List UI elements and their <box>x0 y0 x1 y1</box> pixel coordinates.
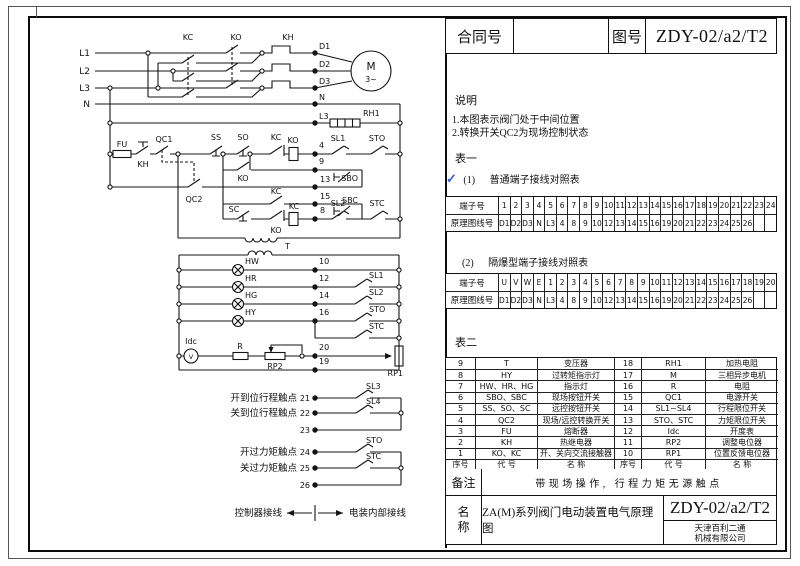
component-table-cell: T <box>475 358 537 369</box>
lbl-t26: 26 <box>300 481 310 490</box>
lbl-rp2: RP2 <box>267 362 282 371</box>
component-table-cell: 14 <box>614 403 641 414</box>
component-table-cell: RP1 <box>641 448 705 459</box>
terminal-table-cell: 12 <box>625 197 637 214</box>
terminal-table-cell: D1 <box>498 291 510 308</box>
terminal-table-cell <box>753 291 765 308</box>
component-boxes <box>113 119 403 366</box>
terminal-table-cell: L3 <box>544 291 556 308</box>
terminal-table-cell: U <box>498 274 510 291</box>
terminal-table-cell: 20 <box>718 197 730 214</box>
terminal-table-cell: 18 <box>741 274 753 291</box>
terminal-table-cell <box>764 214 776 231</box>
lbl-stc-lamp: STC <box>369 322 384 331</box>
terminal-table-cell: 2 <box>556 274 568 291</box>
lbl-legend-left: 控制器接线 <box>234 507 282 519</box>
table1-sub1-line: ✓ (1) 普通端子接线对照表 <box>446 171 580 187</box>
sub2-title: 隔爆型端子接线对照表 <box>488 258 588 269</box>
lbl-t19: 19 <box>319 357 329 366</box>
lbl-stc-main: STC <box>369 199 384 208</box>
sub1-index: (1) <box>463 175 475 186</box>
component-table-cell: 7 <box>446 380 475 391</box>
terminal-table-cell: 21 <box>683 214 695 231</box>
component-table-cell: 电阻 <box>705 380 778 391</box>
terminal-table-cell: 23 <box>706 214 718 231</box>
terminal-table-cell: 10 <box>649 274 661 291</box>
contact-symbols <box>136 45 388 468</box>
component-table-cell: 现场按钮开关 <box>537 392 614 403</box>
terminal-table-cell: L3 <box>544 214 556 231</box>
terminal-table-row-label: 端子号 <box>446 197 498 214</box>
sub2-index: (2) <box>462 258 474 269</box>
lbl-t4: 4 <box>319 141 324 150</box>
terminal-table-cell: 4 <box>579 274 591 291</box>
lbl-t15: 15 <box>320 192 330 201</box>
lbl-qc2: QC2 <box>186 195 203 204</box>
terminal-table-cell: N <box>533 291 545 308</box>
component-table-cell: 过转矩指示灯 <box>537 369 614 380</box>
component-table-cell: 16 <box>614 380 641 391</box>
terminal-table-cell: 19 <box>660 214 672 231</box>
terminal-table-cell: 6 <box>602 274 614 291</box>
contract-no-value <box>514 19 609 53</box>
terminal-table-cell: 14 <box>625 214 637 231</box>
terminal-table-cell: E <box>533 274 545 291</box>
table1-sub2-line: (2) 隔爆型端子接线对照表 <box>462 254 588 269</box>
terminal-table-cell <box>764 291 776 308</box>
table1-caption: 表一 <box>455 150 477 166</box>
lbl-t24: 24 <box>300 448 310 457</box>
component-table-cell: 远控按钮开关 <box>537 403 614 414</box>
terminal-table-cell: W <box>521 274 533 291</box>
terminal-table-cell: 5 <box>591 274 603 291</box>
lbl-kc-aux: KC <box>271 187 282 196</box>
component-table-cell: 2 <box>446 436 475 447</box>
lbl-l3: L3 <box>79 84 90 94</box>
terminal-table-cell: 16 <box>649 291 661 308</box>
lbl-fu: FU <box>117 140 128 149</box>
component-table-cell: SBO、SBC <box>475 392 537 403</box>
lbl-ko-nc: KO <box>270 226 281 235</box>
component-table-cell: 加热电阻 <box>705 358 778 369</box>
terminal-table-cell <box>753 214 765 231</box>
lbl-hr: HR <box>245 274 257 283</box>
lbl-sbo: SBO <box>341 174 358 183</box>
lbl-sl3: SL3 <box>366 382 381 391</box>
lbl-sl1-main: SL1 <box>331 134 346 143</box>
terminal-table-cell: 16 <box>672 197 684 214</box>
component-table-cell: 力矩限位开关 <box>705 414 778 425</box>
component-table-cell: HY <box>475 369 537 380</box>
terminal-table-cell: 7 <box>614 274 626 291</box>
lbl-t23: 23 <box>300 426 310 435</box>
component-table-cell: Idc <box>641 425 705 436</box>
lbl-n-term: N <box>319 93 325 102</box>
lbl-sl2-main: SL2 <box>331 199 346 208</box>
lbl-t14: 14 <box>319 291 329 300</box>
lbl-hg: HG <box>245 291 257 300</box>
notes-block: 说明 1.本图表示阀门处于中间位置 2.转换开关QC2为现场控制状态 <box>455 92 765 140</box>
component-table-cell: SS、SO、SC <box>475 403 537 414</box>
terminal-table-cell: D2 <box>510 291 522 308</box>
note-item: 2.转换开关QC2为现场控制状态 <box>452 127 765 140</box>
terminal-table-cell: 8 <box>579 197 591 214</box>
terminal-table-cell: 9 <box>637 274 649 291</box>
lamps <box>233 265 244 327</box>
component-table-cell: 11 <box>614 436 641 447</box>
lbl-meter-v: V <box>189 353 194 361</box>
terminal-table-row-label: 原理图线号 <box>446 291 498 308</box>
terminal-table-cell: 22 <box>741 197 753 214</box>
terminal-table-cell: 4 <box>556 291 568 308</box>
terminal-table-cell: 21 <box>730 197 742 214</box>
company-line2: 机械有限公司 <box>694 533 745 543</box>
lbl-rp1: RP1 <box>388 369 403 378</box>
terminal-table-cell: 24 <box>764 197 776 214</box>
kh-heater-symbols <box>268 46 294 88</box>
lbl-open-torque: 开过力矩触点 <box>240 446 298 458</box>
terminal-table-cell: 23 <box>706 291 718 308</box>
terminal-table-cell: 5 <box>544 197 556 214</box>
check-icon: ✓ <box>446 171 457 186</box>
arrowheads <box>269 347 393 516</box>
terminal-table-cell: 13 <box>637 197 649 214</box>
terminal-table-cell: 9 <box>579 291 591 308</box>
terminal-table-cell: V <box>510 274 522 291</box>
terminal-table-cell: 11 <box>660 274 672 291</box>
component-table-cell: QC2 <box>475 414 537 425</box>
terminal-table-cell: 20 <box>764 274 776 291</box>
lbl-motor: M <box>366 61 375 73</box>
component-table-cell: 9 <box>446 358 475 369</box>
lbl-close-travel: 关到位行程触点 <box>230 407 297 419</box>
component-table-cell: 热继电器 <box>537 436 614 447</box>
lbl-so: SO <box>237 133 248 142</box>
terminal-table-cell: D3 <box>521 291 533 308</box>
terminal-table-cell: 4 <box>556 214 568 231</box>
lbl-t8: 8 <box>320 206 325 215</box>
terminal-table-cell: 10 <box>591 214 603 231</box>
terminal-table-cell: 26 <box>741 214 753 231</box>
component-table-cell: 位置反馈电位器 <box>705 448 778 459</box>
lbl-t16: 16 <box>319 308 329 317</box>
terminal-table-cell: 7 <box>567 197 579 214</box>
lbl-ko-aux: KO <box>237 174 248 183</box>
component-table-cell: QC1 <box>641 392 705 403</box>
component-table-cell: STO、STC <box>641 414 705 425</box>
circuit-schematic: L1 L2 L3 N KC KO KH D1 D2 D3 N L3 RH1 M … <box>28 16 445 548</box>
component-table-cell: 开度表 <box>705 425 778 436</box>
component-table-cell: 6 <box>446 392 475 403</box>
drawing-no-label: 图号 <box>609 19 646 53</box>
terminal-table-cell: 15 <box>637 214 649 231</box>
lbl-close-torque: 关过力矩触点 <box>240 462 298 474</box>
lbl-sl2-lamp: SL2 <box>369 288 384 297</box>
remark-label: 备注 <box>446 469 482 495</box>
lbl-t20: 20 <box>319 343 329 352</box>
transformer-coils <box>245 238 277 255</box>
explosion-proof-terminal-table: 端子号UVWE1234567891011121314151617181920原理… <box>445 273 777 309</box>
terminal-table-cell: 12 <box>602 214 614 231</box>
name-block: 名 称 ZA(M)系列阀门电动装置电气原理图 ZDY-02/a2/T2 天津百利… <box>445 496 777 545</box>
terminal-table-cell: 12 <box>602 291 614 308</box>
terminal-table-cell: 15 <box>637 291 649 308</box>
lbl-kc-nc: KC <box>271 133 282 142</box>
lbl-kc-top: KC <box>183 33 194 42</box>
lbl-t12: 12 <box>319 274 329 283</box>
terminal-table-cell: 1 <box>498 197 510 214</box>
component-table-cell: 熔断器 <box>537 425 614 436</box>
component-table-cell: 10 <box>614 448 641 459</box>
component-table-cell: 现场/远控转换开关 <box>537 414 614 425</box>
component-table-cell: 开、关向交流接触器 <box>537 448 614 459</box>
terminal-table-cell: 26 <box>741 291 753 308</box>
terminal-table-cell: 21 <box>683 291 695 308</box>
terminal-table-cell: 8 <box>625 274 637 291</box>
terminal-table-cell: 19 <box>706 197 718 214</box>
component-table: 9T变压器18RH1加热电阻8HY过转矩指示灯17M三相异步电机7HW、HR、H… <box>445 357 777 471</box>
component-table-cell: 变压器 <box>537 358 614 369</box>
terminal-table-cell: 24 <box>718 214 730 231</box>
terminal-table-cell: 12 <box>672 274 684 291</box>
component-table-cell: 1 <box>446 448 475 459</box>
terminal-table-cell: 16 <box>718 274 730 291</box>
lbl-kh-top: KH <box>282 33 293 42</box>
lbl-ko-top: KO <box>230 33 241 42</box>
terminal-table-cell: 25 <box>730 291 742 308</box>
lbl-open-travel: 开到位行程触点 <box>230 392 297 404</box>
component-table-cell: 指示灯 <box>537 380 614 391</box>
lbl-t25: 25 <box>300 464 310 473</box>
terminal-table-cell: 22 <box>695 214 707 231</box>
lbl-idc: Idc <box>185 337 197 346</box>
terminal-table-cell: 20 <box>672 291 684 308</box>
terminal-table-cell: 10 <box>591 291 603 308</box>
lbl-kh-contact: KH <box>137 160 148 169</box>
lbl-ko-coil: KO <box>287 136 298 145</box>
terminal-table-cell: 8 <box>567 291 579 308</box>
lbl-sto-lamp: STO <box>369 305 385 314</box>
lbl-t9: 9 <box>319 157 324 166</box>
remark-block: 备注 带现场操作, 行程力矩无源触点 <box>445 469 777 496</box>
terminal-table-cell: 23 <box>753 197 765 214</box>
terminal-table-cell: 13 <box>614 214 626 231</box>
lbl-motor-phase: 3~ <box>365 75 377 84</box>
name-label-char2: 称 <box>457 520 469 535</box>
component-table-cell: M <box>641 369 705 380</box>
terminal-table-cell: 10 <box>602 197 614 214</box>
terminal-table-cell: 4 <box>533 197 545 214</box>
component-table-cell: 电源开关 <box>705 392 778 403</box>
terminal-table-cell: 3 <box>521 197 533 214</box>
terminal-table-row-label: 端子号 <box>446 274 498 291</box>
drawing-no-bottom: ZDY-02/a2/T2 <box>664 496 776 521</box>
lbl-l2: L2 <box>79 67 90 77</box>
component-table-cell: 12 <box>614 425 641 436</box>
terminal-table-cell: 24 <box>718 291 730 308</box>
lbl-hw: HW <box>245 257 259 266</box>
component-table-cell: KH <box>475 436 537 447</box>
component-table-cell: HW、HR、HG <box>475 380 537 391</box>
terminal-table-cell: 19 <box>753 274 765 291</box>
terminal-table-row-label: 原理图线号 <box>446 214 498 231</box>
mechanical-links <box>162 47 232 181</box>
lbl-qc1: QC1 <box>156 135 173 144</box>
component-table-cell: 5 <box>446 403 475 414</box>
name-label-char1: 名 <box>457 505 469 520</box>
terminal-table-cell: 13 <box>614 291 626 308</box>
remark-text: 带现场操作, 行程力矩无源触点 <box>482 469 776 495</box>
terminal-table-cell: 18 <box>695 197 707 214</box>
component-table-cell: RH1 <box>641 358 705 369</box>
terminal-table-cell: 14 <box>625 291 637 308</box>
lbl-transformer: T <box>284 242 290 251</box>
lbl-t22: 22 <box>300 409 310 418</box>
lbl-sto-out: STO <box>366 436 382 445</box>
lbl-t21: 21 <box>300 394 310 403</box>
drawing-title: ZA(M)系列阀门电动装置电气原理图 <box>482 496 664 544</box>
lbl-kc-coil: KC <box>289 202 300 211</box>
terminal-table-cell: 15 <box>660 197 672 214</box>
terminal-table-cell: 11 <box>614 197 626 214</box>
terminal-table-cell: 17 <box>683 197 695 214</box>
lbl-ss: SS <box>211 133 221 142</box>
name-label: 名 称 <box>446 496 482 544</box>
component-table-cell: 13 <box>614 414 641 425</box>
terminal-table-cell: 25 <box>730 214 742 231</box>
component-table-cell: 调整电位器 <box>705 436 778 447</box>
lbl-sl1-lamp: SL1 <box>369 271 384 280</box>
lbl-r: R <box>237 342 243 351</box>
lbl-rh1: RH1 <box>363 109 380 118</box>
lbl-sl4: SL4 <box>366 397 381 406</box>
component-table-cell: 4 <box>446 414 475 425</box>
component-table-cell: 8 <box>446 369 475 380</box>
lbl-l1: L1 <box>79 49 90 59</box>
terminal-table-cell: D2 <box>510 214 522 231</box>
drawing-sheet: L1 L2 L3 N KC KO KH D1 D2 D3 N L3 RH1 M … <box>0 0 800 566</box>
lbl-d2: D2 <box>319 60 330 69</box>
terminal-table-cell: 2 <box>510 197 522 214</box>
component-table-cell: KO、KC <box>475 448 537 459</box>
terminal-table-cell: 17 <box>730 274 742 291</box>
lbl-sc: SC <box>229 205 240 214</box>
terminal-table-cell: 19 <box>660 291 672 308</box>
terminal-table-cell: N <box>533 214 545 231</box>
lbl-t10: 10 <box>319 257 329 266</box>
lbl-legend-right: 电装内部接线 <box>349 507 407 519</box>
lbl-sto-main: STO <box>369 134 385 143</box>
table2-caption: 表二 <box>455 334 477 350</box>
note-item: 1.本图表示阀门处于中间位置 <box>452 114 765 127</box>
lbl-t13: 13 <box>320 175 330 184</box>
terminal-table-cell: 3 <box>567 274 579 291</box>
terminal-table-cell: 13 <box>683 274 695 291</box>
terminal-table-cell: 22 <box>695 291 707 308</box>
drawing-no-value: ZDY-02/a2/T2 <box>646 19 778 53</box>
lbl-d1: D1 <box>319 42 330 51</box>
contract-no-label: 合同号 <box>446 19 514 53</box>
lbl-n: N <box>83 100 90 110</box>
terminal-table-cell: 9 <box>579 214 591 231</box>
company-name: 天津百利二通 机械有限公司 <box>664 521 776 544</box>
terminal-table-cell: 20 <box>672 214 684 231</box>
terminal-table-cell: D3 <box>521 214 533 231</box>
terminal-table-cell: D1 <box>498 214 510 231</box>
terminal-table-cell: 1 <box>544 274 556 291</box>
lbl-hy: HY <box>245 308 256 317</box>
notes-title: 说明 <box>455 92 765 108</box>
component-table-cell: 3 <box>446 425 475 436</box>
terminal-table-cell: 9 <box>591 197 603 214</box>
terminal-table-cell: 8 <box>567 214 579 231</box>
component-table-cell: SL1~SL4 <box>641 403 705 414</box>
terminal-table-cell: 14 <box>649 197 661 214</box>
terminal-table-cell: 6 <box>556 197 568 214</box>
component-table-cell: 18 <box>614 358 641 369</box>
component-table-cell: R <box>641 380 705 391</box>
component-table-cell: 三相异步电机 <box>705 369 778 380</box>
component-table-cell: RP2 <box>641 436 705 447</box>
terminal-table-cell: 15 <box>706 274 718 291</box>
terminal-dots <box>312 50 317 487</box>
lbl-l3-term: L3 <box>319 112 329 121</box>
lbl-d3: D3 <box>319 77 330 86</box>
title-strip: 合同号 图号 ZDY-02/a2/T2 <box>445 18 777 54</box>
sub1-title: 普通端子接线对照表 <box>490 175 580 186</box>
terminal-table-cell: 16 <box>649 214 661 231</box>
normal-terminal-table: 端子号1234567891011121314151617181920212223… <box>445 196 777 232</box>
component-table-cell: FU <box>475 425 537 436</box>
terminal-table-cell: 14 <box>695 274 707 291</box>
component-table-cell: 行程限位开关 <box>705 403 778 414</box>
component-table-cell: 15 <box>614 392 641 403</box>
component-table-cell: 17 <box>614 369 641 380</box>
company-line1: 天津百利二通 <box>694 523 745 533</box>
lbl-stc-out: STC <box>366 452 381 461</box>
